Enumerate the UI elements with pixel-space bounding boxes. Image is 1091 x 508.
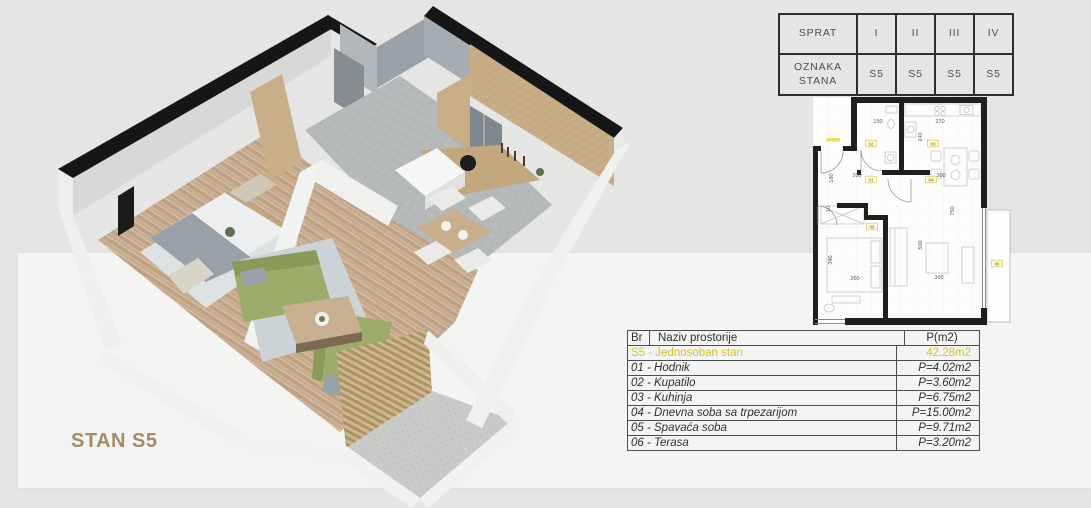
dimension-label: 180 — [829, 173, 835, 182]
dimension-label: 500 — [918, 240, 924, 249]
floors-cell: S5 — [936, 55, 975, 94]
floors-row-label: SPRAT — [780, 15, 858, 55]
room-tag-number: 01 — [868, 178, 874, 183]
east-wall-lower — [466, 266, 558, 428]
floors-table: SPRATIIIIIIIVOZNAKA STANAS5S5S5S5 — [778, 13, 1014, 96]
rooms-table-highlight-row: S5 - Jednosoban stan42.28m2 — [628, 346, 979, 361]
floors-cell: S5 — [897, 55, 936, 94]
dimension-label: 390 — [828, 255, 834, 264]
rooms-table-row: 03 - KuhinjaP=6.75m2 — [628, 391, 979, 406]
floors-cell: III — [936, 15, 975, 55]
rooms-table-header: BrNaziv prostorijeP(m2) — [628, 331, 979, 346]
dimension-label: 300 — [934, 275, 943, 281]
south-wall — [240, 436, 348, 462]
rooms-table-row: 04 - Dnevna soba sa trpezarijomP=15.00m2 — [628, 406, 979, 421]
floors-cell: S5 — [858, 55, 897, 94]
room-tag-number: 03 — [930, 142, 936, 147]
rooms-table-row: 05 - Spavaća sobaP=9.71m2 — [628, 421, 979, 436]
kitchen-plant — [536, 168, 544, 176]
dimension-label: 270 — [935, 119, 944, 125]
floor-plan-sheet: STAN S5 SPRATIIIIIIIVOZNAKA STANAS5S5S5S… — [0, 0, 1091, 508]
kitchen-sink-bowl — [460, 155, 476, 171]
floor-plan-2d: 15027024018020030010390260500300750 0102… — [800, 90, 1020, 335]
dimension-label: 10 — [826, 206, 832, 212]
dimension-label: 150 — [873, 119, 882, 125]
sw-wall-upper — [58, 207, 122, 352]
floors-row-label: OZNAKA STANA — [780, 55, 858, 94]
rooms-table-row: 06 - TerasaP=3.20m2 — [628, 436, 979, 450]
dimension-label: 240 — [918, 132, 924, 141]
room-tag-number: 02 — [868, 142, 874, 147]
floors-cell: II — [897, 15, 936, 55]
entrance-marker — [826, 138, 840, 142]
apartment-label: STAN S5 — [71, 430, 157, 453]
rooms-table-row: 01 - HodnikP=4.02m2 — [628, 361, 979, 376]
room-tag-number: 06 — [994, 262, 1000, 267]
floors-cell: IV — [975, 15, 1012, 55]
dimension-label: 200 — [852, 173, 861, 179]
rooms-table: BrNaziv prostorijeP(m2)S5 - Jednosoban s… — [627, 330, 980, 451]
floors-cell: S5 — [975, 55, 1012, 94]
floors-cell: I — [858, 15, 897, 55]
dimension-label: 260 — [850, 276, 859, 282]
room-tag-number: 05 — [869, 225, 875, 230]
rooms-table-row: 02 - KupatiloP=3.60m2 — [628, 376, 979, 391]
dimension-label: 300 — [936, 173, 945, 179]
plant — [225, 227, 235, 237]
room-tag-number: 04 — [928, 178, 934, 183]
dimension-label: 750 — [950, 206, 956, 215]
